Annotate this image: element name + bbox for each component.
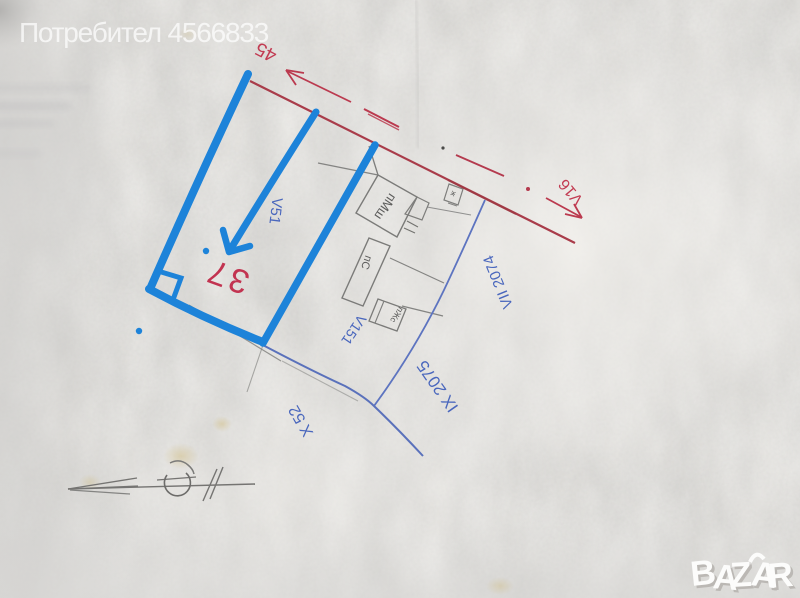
svg-text:V51: V51 bbox=[265, 197, 285, 226]
svg-text:R: R bbox=[766, 555, 795, 596]
svg-text:Потребител 4566833: Потребител 4566833 bbox=[19, 17, 269, 48]
